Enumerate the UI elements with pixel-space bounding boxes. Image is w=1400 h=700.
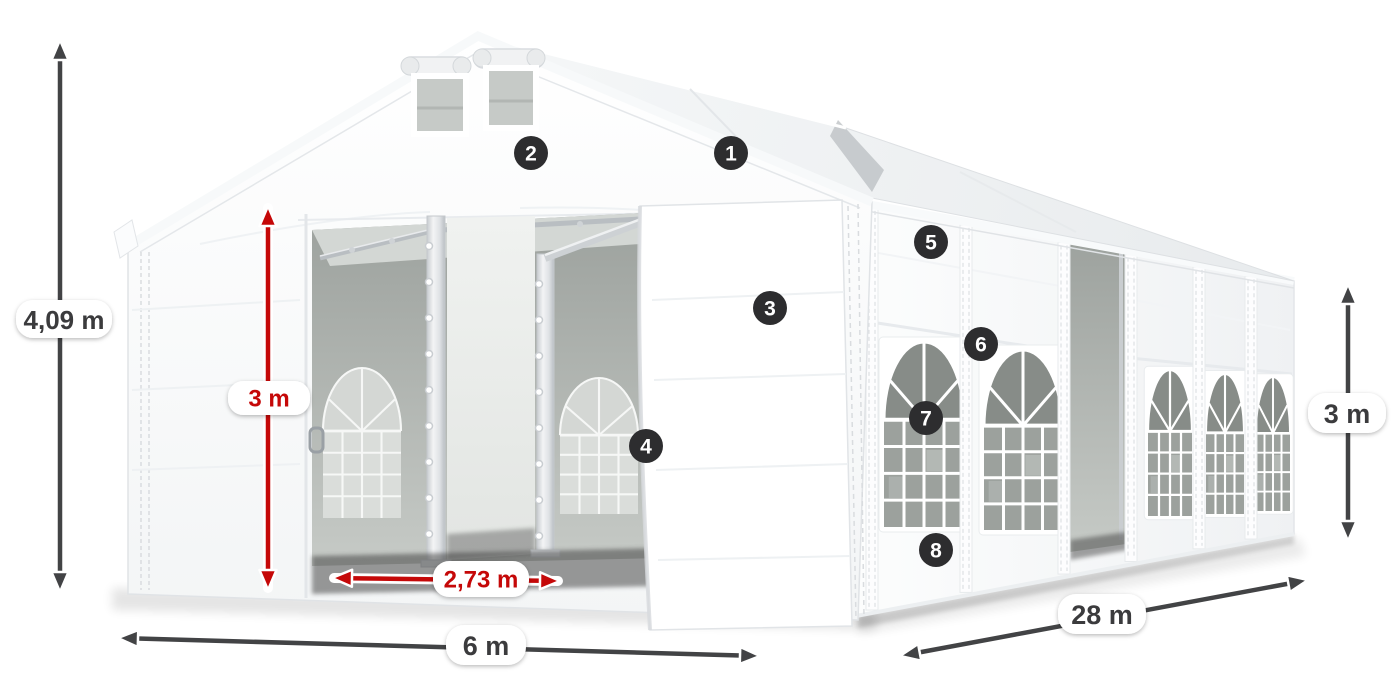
- arrowhead: [1340, 284, 1357, 304]
- dimension-side-height: 3 m: [1308, 284, 1386, 541]
- bungee-clip: [426, 531, 433, 538]
- arrowhead: [52, 40, 69, 60]
- bungee-clip: [426, 423, 433, 430]
- open-passage: [447, 216, 535, 560]
- seam-strap: [1245, 276, 1257, 539]
- callout-badge-5: 5: [914, 225, 948, 259]
- arrowhead: [52, 572, 69, 592]
- callout-number: 5: [925, 232, 937, 255]
- bungee-clip: [536, 461, 543, 468]
- seam-strap: [1125, 255, 1137, 562]
- dimension-label: 6 m: [463, 631, 510, 661]
- dimension-label: 3 m: [248, 386, 289, 413]
- bungee-clip: [426, 279, 433, 286]
- seam-strap: [1193, 267, 1205, 549]
- bungee-clip: [536, 389, 543, 396]
- arched-window: [1253, 374, 1294, 515]
- bungee-clip: [536, 533, 543, 540]
- bungee-clip: [536, 317, 543, 324]
- callout-number: 1: [725, 143, 737, 166]
- bungee-clip: [426, 243, 433, 250]
- callout-number: 7: [920, 408, 932, 431]
- callout-badge-7: 7: [909, 401, 943, 435]
- gable-vent-right: [473, 49, 545, 128]
- entrance-interior: [312, 212, 664, 594]
- bungee-clip: [536, 281, 543, 288]
- dimension-front-width: 6 m: [118, 625, 760, 665]
- tent-dimensions-diagram: 4,09 m3 m2,73 m6 m28 m3 m12345678: [0, 0, 1400, 700]
- bungee-clip: [426, 315, 433, 322]
- dimension-label: 3 m: [1324, 399, 1371, 429]
- callout-badge-1: 1: [714, 136, 748, 170]
- callout-number: 3: [764, 298, 776, 321]
- callout-number: 6: [975, 334, 987, 357]
- arched-window: [1203, 371, 1248, 518]
- callout-badge-8: 8: [919, 533, 953, 567]
- right-door: [639, 200, 864, 630]
- callout-badge-3: 3: [753, 291, 787, 325]
- seam-strap: [1058, 243, 1070, 575]
- callout-number: 8: [930, 540, 942, 563]
- arched-window: [1144, 366, 1196, 520]
- callout-number: 2: [525, 143, 537, 166]
- arrowhead: [740, 647, 760, 664]
- bungee-clip: [426, 351, 433, 358]
- dimension-label: 2,73 m: [444, 567, 519, 594]
- bungee-clip: [426, 459, 433, 466]
- callout-badge-2: 2: [514, 136, 548, 170]
- printed-window: [323, 368, 401, 518]
- callout-badge-6: 6: [964, 327, 998, 361]
- gable-vent-left: [401, 57, 471, 134]
- printed-window: [560, 378, 638, 514]
- arched-window: [979, 345, 1067, 535]
- dimension-label: 28 m: [1071, 600, 1133, 630]
- bungee-clip: [536, 353, 543, 360]
- tent-illustration: 4,09 m3 m2,73 m6 m28 m3 m12345678: [0, 0, 1400, 700]
- arrowhead: [1340, 521, 1357, 541]
- seam-strap: [960, 225, 972, 593]
- bungee-clip: [426, 495, 433, 502]
- callout-number: 4: [640, 436, 652, 459]
- arrowhead: [118, 630, 138, 647]
- dimension-total-height: 4,09 m: [16, 40, 112, 592]
- bungee-clip: [536, 497, 543, 504]
- side-door-opening: [1070, 232, 1126, 552]
- bungee-clip: [426, 387, 433, 394]
- dimension-label: 4,09 m: [24, 305, 105, 335]
- bungee-clip: [536, 425, 543, 432]
- callout-badge-4: 4: [629, 429, 663, 463]
